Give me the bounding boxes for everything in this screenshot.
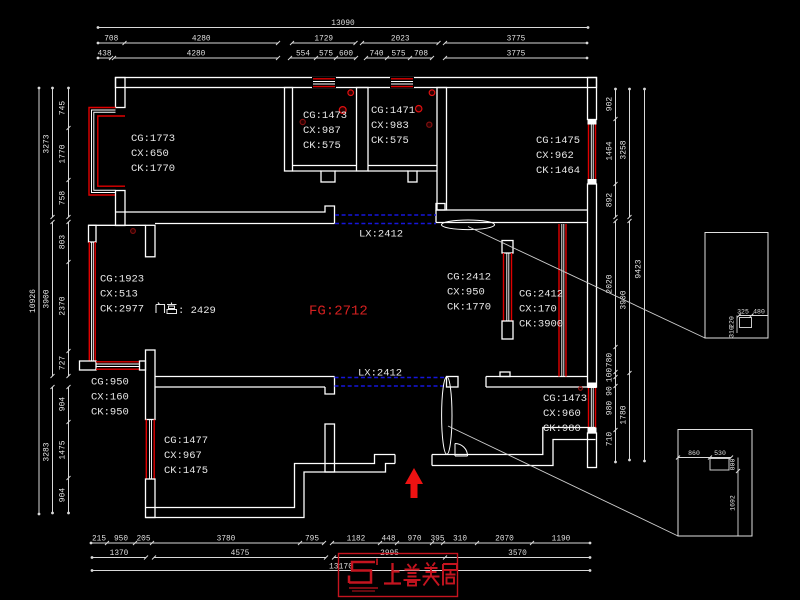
svg-text:FG:2712: FG:2712 (309, 304, 368, 320)
svg-text:CX:983: CX:983 (371, 120, 409, 132)
svg-text:13090: 13090 (331, 20, 355, 28)
svg-text:600: 600 (339, 51, 353, 59)
svg-text:CX:170: CX:170 (519, 304, 557, 316)
svg-text:CX:962: CX:962 (536, 150, 574, 162)
svg-text:CK:1770: CK:1770 (447, 302, 491, 314)
svg-text:708: 708 (414, 51, 428, 59)
svg-text:1692: 1692 (730, 495, 737, 511)
svg-text:803: 803 (59, 235, 68, 250)
svg-text:4575: 4575 (231, 550, 250, 558)
svg-text:13170: 13170 (329, 563, 353, 572)
svg-text:575: 575 (391, 51, 405, 59)
svg-text:CG:1923: CG:1923 (100, 274, 144, 286)
svg-text:795: 795 (305, 536, 319, 544)
svg-text:554: 554 (296, 51, 310, 59)
svg-text:215: 215 (92, 536, 106, 544)
svg-text:CX:160: CX:160 (91, 392, 129, 404)
svg-text:4280: 4280 (192, 36, 211, 44)
svg-text:CX:650: CX:650 (131, 148, 169, 160)
svg-text:LX:2412: LX:2412 (358, 368, 402, 380)
svg-text:CX:960: CX:960 (543, 408, 581, 420)
svg-text:1770: 1770 (59, 144, 68, 163)
svg-text:CK:950: CK:950 (91, 407, 129, 419)
svg-text:970: 970 (407, 536, 421, 544)
svg-text:3900: 3900 (43, 289, 52, 308)
svg-text:1370: 1370 (110, 550, 129, 558)
svg-text:CX:967: CX:967 (164, 450, 202, 462)
svg-text:3258: 3258 (620, 140, 629, 159)
svg-text:3780: 3780 (217, 536, 236, 544)
svg-text:745: 745 (59, 101, 68, 116)
svg-text:CX:987: CX:987 (303, 125, 341, 137)
svg-text:1182: 1182 (347, 536, 366, 544)
svg-text:CG:2412: CG:2412 (519, 289, 563, 301)
svg-text:800: 800 (730, 459, 737, 471)
svg-text:2370: 2370 (59, 296, 68, 315)
svg-text:LX:2412: LX:2412 (359, 229, 403, 241)
svg-text:CG:1471: CG:1471 (371, 105, 415, 117)
svg-text:3273: 3273 (43, 134, 52, 153)
svg-text:710: 710 (606, 432, 615, 447)
svg-text:860: 860 (688, 450, 700, 457)
svg-text:904: 904 (59, 397, 68, 412)
svg-text:2070: 2070 (495, 536, 514, 544)
svg-text:CK:980: CK:980 (543, 423, 581, 435)
svg-text:758: 758 (59, 191, 68, 206)
svg-text:980: 980 (606, 401, 615, 416)
svg-text:310: 310 (729, 326, 736, 338)
svg-text:480: 480 (753, 309, 765, 316)
svg-text:2023: 2023 (391, 36, 410, 44)
svg-text:CG:1475: CG:1475 (536, 135, 580, 147)
svg-text:325: 325 (737, 309, 749, 316)
svg-text:220: 220 (729, 316, 736, 328)
svg-text:CK:3900: CK:3900 (519, 319, 563, 331)
svg-text:CK:575: CK:575 (371, 135, 409, 147)
svg-text:2020: 2020 (606, 274, 615, 293)
svg-text:CX:950: CX:950 (447, 287, 485, 299)
svg-text:902: 902 (606, 97, 615, 112)
svg-text:3775: 3775 (507, 51, 526, 59)
svg-text:1780: 1780 (620, 405, 629, 424)
svg-text:CK:1475: CK:1475 (164, 465, 208, 477)
svg-text:708: 708 (104, 36, 118, 44)
svg-text:100: 100 (606, 368, 615, 383)
svg-text:CG:1473: CG:1473 (543, 393, 587, 405)
svg-text:CG:1473: CG:1473 (303, 110, 347, 122)
svg-text:1729: 1729 (314, 36, 333, 44)
svg-text:90: 90 (606, 386, 615, 396)
svg-text:530: 530 (714, 450, 726, 457)
svg-text:3283: 3283 (43, 442, 52, 461)
svg-text:448: 448 (381, 536, 395, 544)
svg-text:1190: 1190 (552, 536, 571, 544)
svg-text:1475: 1475 (59, 440, 68, 459)
svg-text:CG:1773: CG:1773 (131, 133, 175, 145)
svg-text:904: 904 (59, 488, 68, 503)
svg-text:9423: 9423 (635, 259, 644, 278)
svg-text:780: 780 (606, 353, 615, 368)
svg-text:205: 205 (136, 536, 150, 544)
svg-text:CG:2412: CG:2412 (447, 272, 491, 284)
svg-text:4280: 4280 (187, 51, 206, 59)
svg-text:: 2429: : 2429 (178, 305, 216, 317)
svg-text:CK:1770: CK:1770 (131, 163, 175, 175)
svg-text:CG:950: CG:950 (91, 377, 129, 389)
svg-text:575: 575 (319, 51, 333, 59)
svg-text:3570: 3570 (508, 550, 527, 558)
svg-text:892: 892 (606, 193, 615, 208)
svg-text:CX:513: CX:513 (100, 289, 138, 301)
svg-text:CK:2977: CK:2977 (100, 304, 144, 316)
svg-text:950: 950 (114, 536, 128, 544)
svg-text:10926: 10926 (29, 289, 38, 313)
svg-text:740: 740 (369, 51, 383, 59)
svg-text:727: 727 (59, 356, 68, 371)
svg-text:310: 310 (453, 536, 467, 544)
svg-text:1464: 1464 (606, 141, 615, 160)
svg-text:CG:1477: CG:1477 (164, 435, 208, 447)
svg-text:CK:1464: CK:1464 (536, 165, 580, 177)
svg-text:CK:575: CK:575 (303, 140, 341, 152)
svg-text:438: 438 (97, 51, 111, 59)
svg-text:3775: 3775 (507, 36, 526, 44)
